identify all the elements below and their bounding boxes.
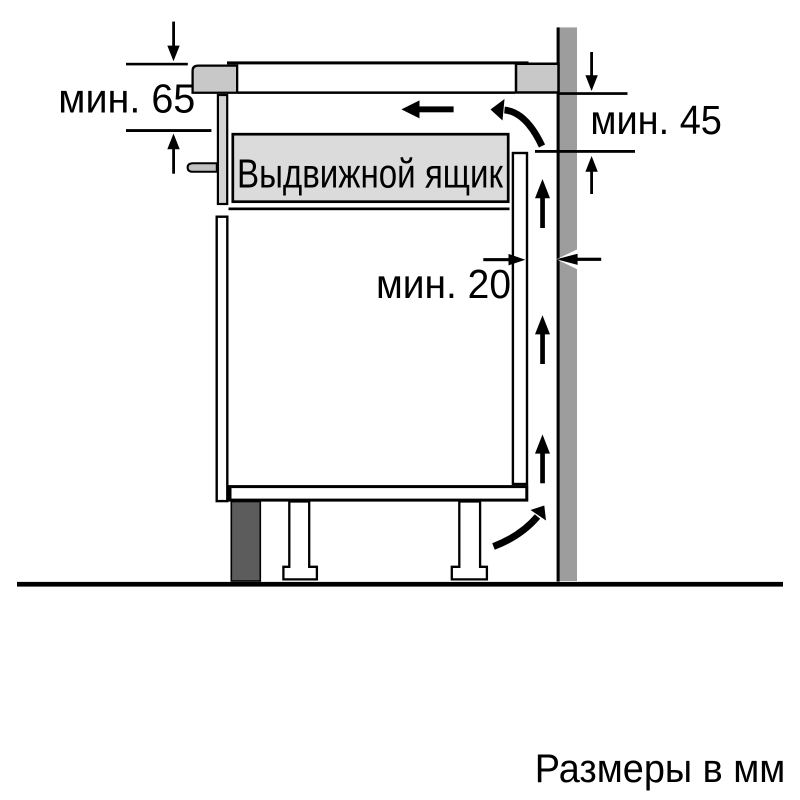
svg-text:Размеры в мм: Размеры в мм <box>535 747 786 791</box>
svg-text:мин. 20: мин. 20 <box>376 261 511 307</box>
svg-text:мин. 45: мин. 45 <box>590 97 722 143</box>
svg-text:мин. 65: мин. 65 <box>58 76 195 122</box>
svg-text:Выдвижной ящик: Выдвижной ящик <box>237 150 504 196</box>
